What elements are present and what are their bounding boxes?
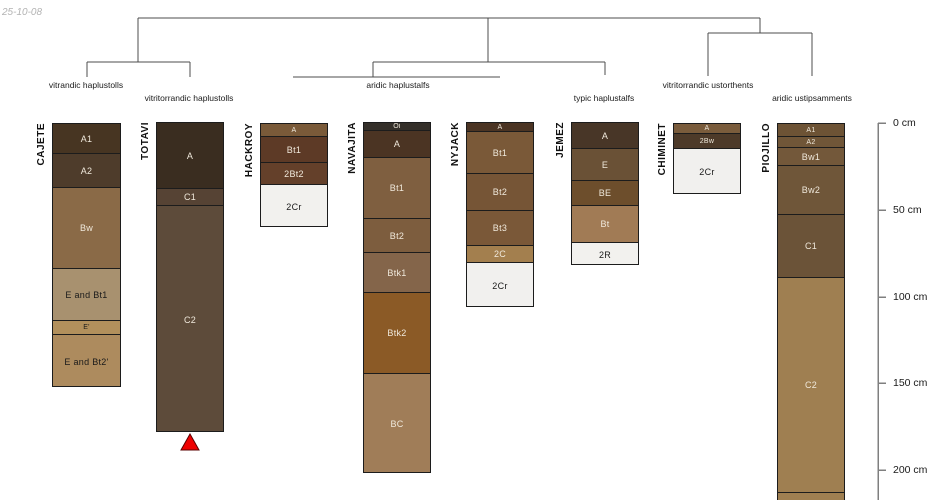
horizon-label: Btk2	[387, 328, 406, 338]
profile-name-cajete: CAJETE	[36, 123, 48, 198]
horizon-label: 2Cr	[286, 202, 301, 212]
horizon-label: Bt2	[493, 187, 507, 197]
horizon-a: A	[467, 123, 533, 132]
taxon-label: vitritorrandic haplustolls	[145, 93, 234, 103]
horizon-label: A	[394, 139, 400, 149]
taxon-label: typic haplustalfs	[574, 93, 634, 103]
horizon-a2: A2	[53, 154, 120, 188]
taxon-label: vitrandic haplustolls	[49, 80, 123, 90]
profile-name-navajita: NAVAJITA	[347, 122, 359, 197]
horizon-label: A	[705, 125, 710, 132]
horizon-2cr: 2Cr	[674, 149, 740, 194]
horizon-label: C1	[805, 241, 817, 251]
horizon-label: BE	[599, 188, 612, 198]
horizon-e: E	[572, 149, 638, 181]
profile-column-nyjack: ABt1Bt2Bt32C2Cr	[466, 122, 534, 307]
horizon-label: Bw	[80, 223, 93, 233]
horizon-bw1: Bw1	[778, 148, 844, 166]
horizon-a: A	[364, 131, 430, 158]
horizon-label: Bt3	[493, 223, 507, 233]
horizon-e-: E'	[53, 321, 120, 335]
profile-name-piojillo: PIOJILLO	[761, 123, 773, 198]
depth-axis-tick-label: 0 cm	[893, 117, 916, 129]
horizon-e-and-bt2-: E and Bt2'	[53, 335, 120, 387]
horizon-label: 2Bt2	[284, 169, 304, 179]
horizon-label: Oi	[393, 123, 401, 130]
horizon-label: 2Bw	[700, 138, 715, 145]
profile-column-navajita: OiABt1Bt2Btk1Btk2BC	[363, 122, 431, 473]
horizon-2c: 2C	[467, 246, 533, 263]
horizon-label: C1	[184, 192, 196, 202]
horizon-label: E	[602, 160, 608, 170]
profile-name-hackroy: HACKROY	[244, 123, 256, 198]
horizon-label: Bt1	[287, 145, 301, 155]
horizon-label: A	[292, 127, 297, 134]
horizon-2bw: 2Bw	[674, 134, 740, 149]
horizon-label: 2C	[494, 249, 506, 259]
horizon-unlabeled	[778, 493, 844, 500]
horizon-label: A1	[81, 134, 93, 144]
profile-column-totavi: AC1C2	[156, 122, 224, 432]
horizon-bt1: Bt1	[467, 132, 533, 174]
horizon-label: A2	[81, 166, 93, 176]
profile-column-chiminet: A2Bw2Cr	[673, 123, 741, 194]
profile-column-jemez: AEBEBt2R	[571, 122, 639, 265]
horizon-a2: A2	[778, 137, 844, 148]
horizon-label: C2	[805, 380, 817, 390]
horizon-label: 2Cr	[492, 281, 507, 291]
horizon-a1: A1	[778, 124, 844, 137]
horizon-label: A2	[806, 139, 815, 146]
horizon-bw2: Bw2	[778, 166, 844, 215]
depth-axis-tick-label: 50 cm	[893, 204, 922, 216]
profile-name-totavi: TOTAVI	[140, 122, 152, 197]
profile-name-nyjack: NYJACK	[450, 122, 462, 197]
horizon-a: A	[261, 124, 327, 137]
horizon-label: C2	[184, 315, 196, 325]
horizon-bw: Bw	[53, 188, 120, 269]
depth-axis-tick-label: 200 cm	[893, 464, 927, 476]
horizon-btk2: Btk2	[364, 293, 430, 374]
horizon-2bt2: 2Bt2	[261, 163, 327, 185]
horizon-2r: 2R	[572, 243, 638, 265]
horizon-label: E and Bt2'	[64, 357, 108, 367]
horizon-label: A	[187, 151, 193, 161]
horizon-label: Btk1	[387, 268, 406, 278]
totavi-marker-triangle	[181, 434, 199, 450]
horizon-label: E and Bt1	[65, 290, 107, 300]
horizon-be: BE	[572, 181, 638, 206]
horizon-label: Bt2	[390, 231, 404, 241]
profile-name-jemez: JEMEZ	[555, 122, 567, 197]
horizon-c2: C2	[157, 206, 223, 432]
horizon-label: E'	[83, 324, 90, 331]
horizon-bt2: Bt2	[467, 174, 533, 211]
profile-column-hackroy: ABt12Bt22Cr	[260, 123, 328, 227]
horizon-label: Bt1	[493, 148, 507, 158]
horizon-bt: Bt	[572, 206, 638, 243]
horizon-bc: BC	[364, 374, 430, 473]
horizon-a: A	[157, 123, 223, 189]
horizon-bt1: Bt1	[261, 137, 327, 163]
depth-axis-tick-label: 100 cm	[893, 291, 927, 303]
horizon-btk1: Btk1	[364, 253, 430, 293]
profile-column-piojillo: A1A2Bw1Bw2C1C2	[777, 123, 845, 500]
horizon-label: A	[602, 131, 608, 141]
horizon-c1: C1	[778, 215, 844, 278]
horizon-oi: Oi	[364, 123, 430, 131]
horizon-a: A	[674, 124, 740, 134]
horizon-2cr: 2Cr	[261, 185, 327, 227]
horizon-c2: C2	[778, 278, 844, 493]
taxon-label: aridic ustipsamments	[772, 93, 852, 103]
horizon-bt2: Bt2	[364, 219, 430, 253]
horizon-c1: C1	[157, 189, 223, 206]
taxon-label: vitritorrandic ustorthents	[663, 80, 754, 90]
horizon-label: BC	[390, 419, 403, 429]
horizon-bt3: Bt3	[467, 211, 533, 246]
horizon-a: A	[572, 123, 638, 149]
horizon-2cr: 2Cr	[467, 263, 533, 307]
horizon-label: Bw2	[802, 185, 820, 195]
profile-name-chiminet: CHIMINET	[657, 123, 669, 198]
horizon-label: 2R	[599, 250, 611, 260]
horizon-label: A	[498, 124, 503, 131]
horizon-a1: A1	[53, 124, 120, 154]
taxon-label: aridic haplustalfs	[366, 80, 429, 90]
horizon-label: A1	[806, 127, 815, 134]
depth-axis-tick-label: 150 cm	[893, 377, 927, 389]
soil-profile-figure: 25-10-08 vitrandic haplustollsvitritorra…	[0, 0, 950, 500]
horizon-label: 2Cr	[699, 167, 714, 177]
horizon-label: Bt	[600, 219, 609, 229]
horizon-bt1: Bt1	[364, 158, 430, 219]
horizon-label: Bt1	[390, 183, 404, 193]
profile-column-cajete: A1A2BwE and Bt1E'E and Bt2'	[52, 123, 121, 387]
horizon-e-and-bt1: E and Bt1	[53, 269, 120, 321]
horizon-label: Bw1	[802, 152, 820, 162]
